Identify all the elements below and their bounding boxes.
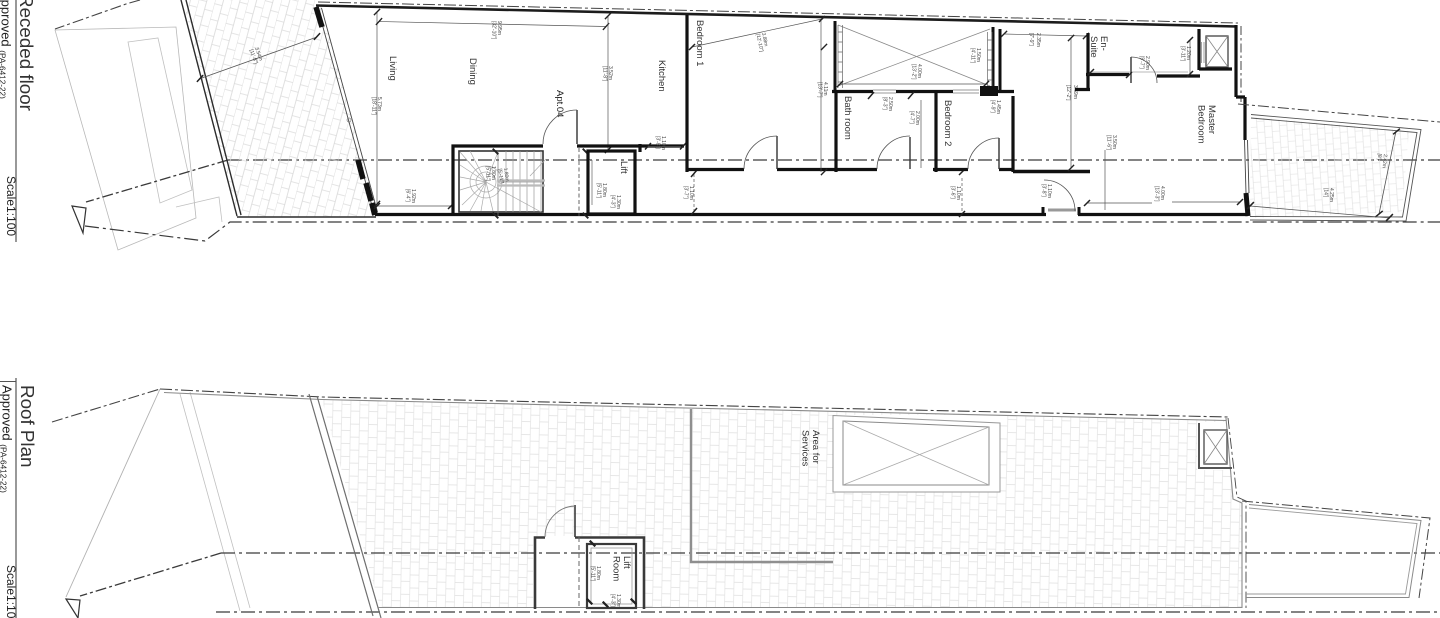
- svg-text:1.45m[4'-9"]: 1.45m[4'-9"]: [989, 100, 1001, 114]
- svg-text:4.00m[13'-3"]: 4.00m[13'-3"]: [1153, 186, 1165, 202]
- svg-text:1.10m[3'-8"]: 1.10m[3'-8"]: [654, 136, 666, 150]
- svg-text:3.52m[11'-8"]: 3.52m[11'-8"]: [601, 66, 613, 82]
- svg-text:1.50m[4'-11"]: 1.50m[4'-11"]: [969, 48, 981, 64]
- svg-text:Receded floor: Receded floor: [16, 0, 37, 111]
- svg-text:Dining: Dining: [467, 58, 478, 85]
- svg-text:1.30m[4'-3"]: 1.30m[4'-3"]: [609, 594, 621, 608]
- svg-text:Apt.04: Apt.04: [554, 90, 565, 117]
- svg-text:1.10m[3'-8"]: 1.10m[3'-8"]: [1040, 184, 1052, 198]
- svg-text:Kitchen: Kitchen: [656, 60, 667, 92]
- svg-text:2.50m[8'-3"]: 2.50m[8'-3"]: [881, 97, 893, 111]
- svg-text:4.00m[13'-2"]: 4.00m[13'-2"]: [910, 64, 922, 80]
- svg-text:1.10m[3'-6"]: 1.10m[3'-6"]: [949, 186, 961, 200]
- svg-text:Living: Living: [387, 56, 398, 81]
- svg-text:1.80m[5'-11"]: 1.80m[5'-11"]: [595, 183, 607, 199]
- svg-text:Scale1:100: Scale1:100: [4, 565, 18, 618]
- svg-text:Area forServices: Area forServices: [800, 430, 822, 467]
- svg-text:Scale1:100: Scale1:100: [4, 176, 18, 236]
- svg-text:3.50m[11'-6"]: 3.50m[11'-6"]: [1105, 135, 1117, 151]
- svg-text:1.10m[3'-7"]: 1.10m[3'-7"]: [682, 186, 694, 200]
- svg-text:Bedroom 1: Bedroom 1: [694, 20, 705, 66]
- svg-text:2.90m[9'-7"]: 2.90m[9'-7"]: [1138, 56, 1150, 70]
- svg-text:3.69m[12'-2"]: 3.69m[12'-2"]: [1065, 85, 1078, 101]
- svg-text:2.35m[7'-9"]: 2.35m[7'-9"]: [1028, 33, 1041, 47]
- svg-text:Bath room: Bath room: [842, 96, 853, 140]
- svg-text:2.00m[4'-7"]: 2.00m[4'-7"]: [908, 111, 920, 125]
- svg-text:Bedroom 2: Bedroom 2: [942, 100, 953, 146]
- svg-text:Lift: Lift: [618, 161, 629, 174]
- svg-text:1.80m[5'-11"]: 1.80m[5'-11"]: [484, 166, 496, 182]
- svg-text:1.30m[4'-3"]: 1.30m[4'-3"]: [609, 195, 621, 209]
- svg-text:1.92m[6'-4"]: 1.92m[6'-4"]: [404, 189, 416, 203]
- svg-text:1.20m[3'-11"]: 1.20m[3'-11"]: [1179, 46, 1191, 62]
- svg-text:Roof Plan: Roof Plan: [17, 385, 38, 467]
- svg-text:1.80m[5'-11"]: 1.80m[5'-11"]: [589, 566, 601, 582]
